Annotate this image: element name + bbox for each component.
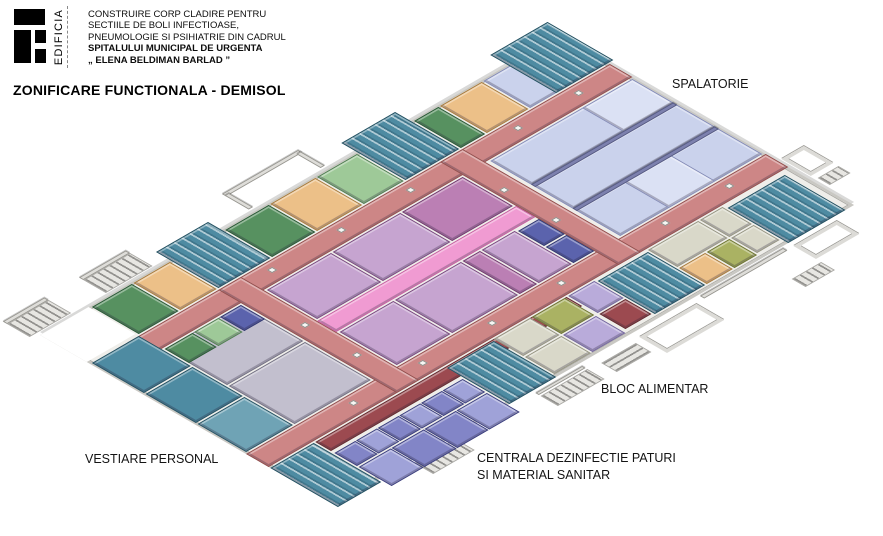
floor-plan-drawing [40, 25, 883, 515]
label-spalatorie: SPALATORIE [672, 76, 748, 93]
label-vestiare-personal: VESTIARE PERSONAL [85, 451, 218, 468]
logo-square [14, 9, 45, 25]
project-description: CONSTRUIRE CORP CLADIRE PENTRU SECTIILE … [88, 9, 286, 66]
project-line: PNEUMOLOGIE SI PSIHIATRIE DIN CADRUL [88, 32, 286, 43]
courtyard-wall [224, 193, 253, 210]
external-stairs [601, 343, 651, 372]
logo-square [35, 30, 46, 43]
project-line: SECTIILE DE BOLI INFECTIOASE, [88, 20, 286, 31]
sheet-title: ZONIFICARE FUNCTIONALA - DEMISOL [13, 82, 286, 98]
logo-square [35, 49, 46, 63]
project-line: CONSTRUIRE CORP CLADIRE PENTRU [88, 9, 286, 20]
courtyard-wall [296, 152, 325, 169]
label-bloc-alimentar: BLOC ALIMENTAR [601, 381, 708, 398]
architectural-drawing-page: { "header": { "logo": "EDIFICIA", "proje… [0, 0, 883, 531]
label-centrala-dezinfectie: CENTRALA DEZINFECTIE PATURI SI MATERIAL … [477, 450, 676, 484]
logo-square [14, 30, 31, 63]
logo-wordmark: EDIFICIA [50, 6, 68, 68]
project-line: SPITALULUI MUNICIPAL DE URGENTA [88, 43, 286, 54]
project-line: „ ELENA BELDIMAN BARLAD ” [88, 55, 286, 66]
external-stairs [792, 262, 835, 287]
logo-text: EDIFICIA [53, 9, 65, 65]
